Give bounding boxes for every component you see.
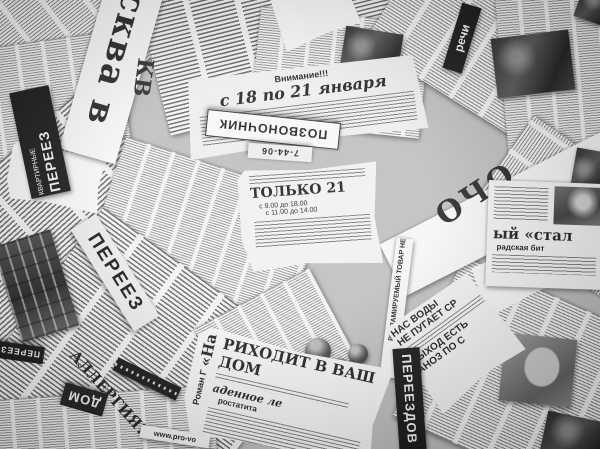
photo-coin — [348, 344, 368, 364]
banner-pereezdov-text: ПЕРЕЕЗДОВ — [399, 354, 420, 445]
article-stalingrad: ый «стал радская бит — [485, 180, 600, 290]
photo-article-thumb — [553, 186, 600, 226]
side-na-text: «На — [196, 332, 221, 368]
article-body-lines — [492, 254, 597, 276]
phone-strip: 7-44-06 — [248, 143, 313, 162]
phone-number: 7-44-06 — [261, 146, 300, 159]
photo-handgun — [491, 29, 576, 98]
side-roman-text: Роман Г — [191, 369, 209, 406]
newspaper-collage-photo: осква в КВ Внимание!!! с 18 по 21 января… — [0, 0, 600, 449]
label-pereez-text: ПЕРЕЕЗ — [0, 345, 41, 360]
ad-tolko21: ТОЛЬКО 21 с 9.00 до 18.00 с 11.00 до 14.… — [237, 161, 384, 273]
label-pozvonochnik-text: ПОЗВОНОЧНИК — [218, 117, 328, 142]
sticker-dom-text: ДОМ — [66, 388, 102, 412]
headline-kv: КВ — [127, 56, 158, 98]
ad-lines — [254, 214, 372, 248]
article-caption-lines — [493, 186, 548, 222]
